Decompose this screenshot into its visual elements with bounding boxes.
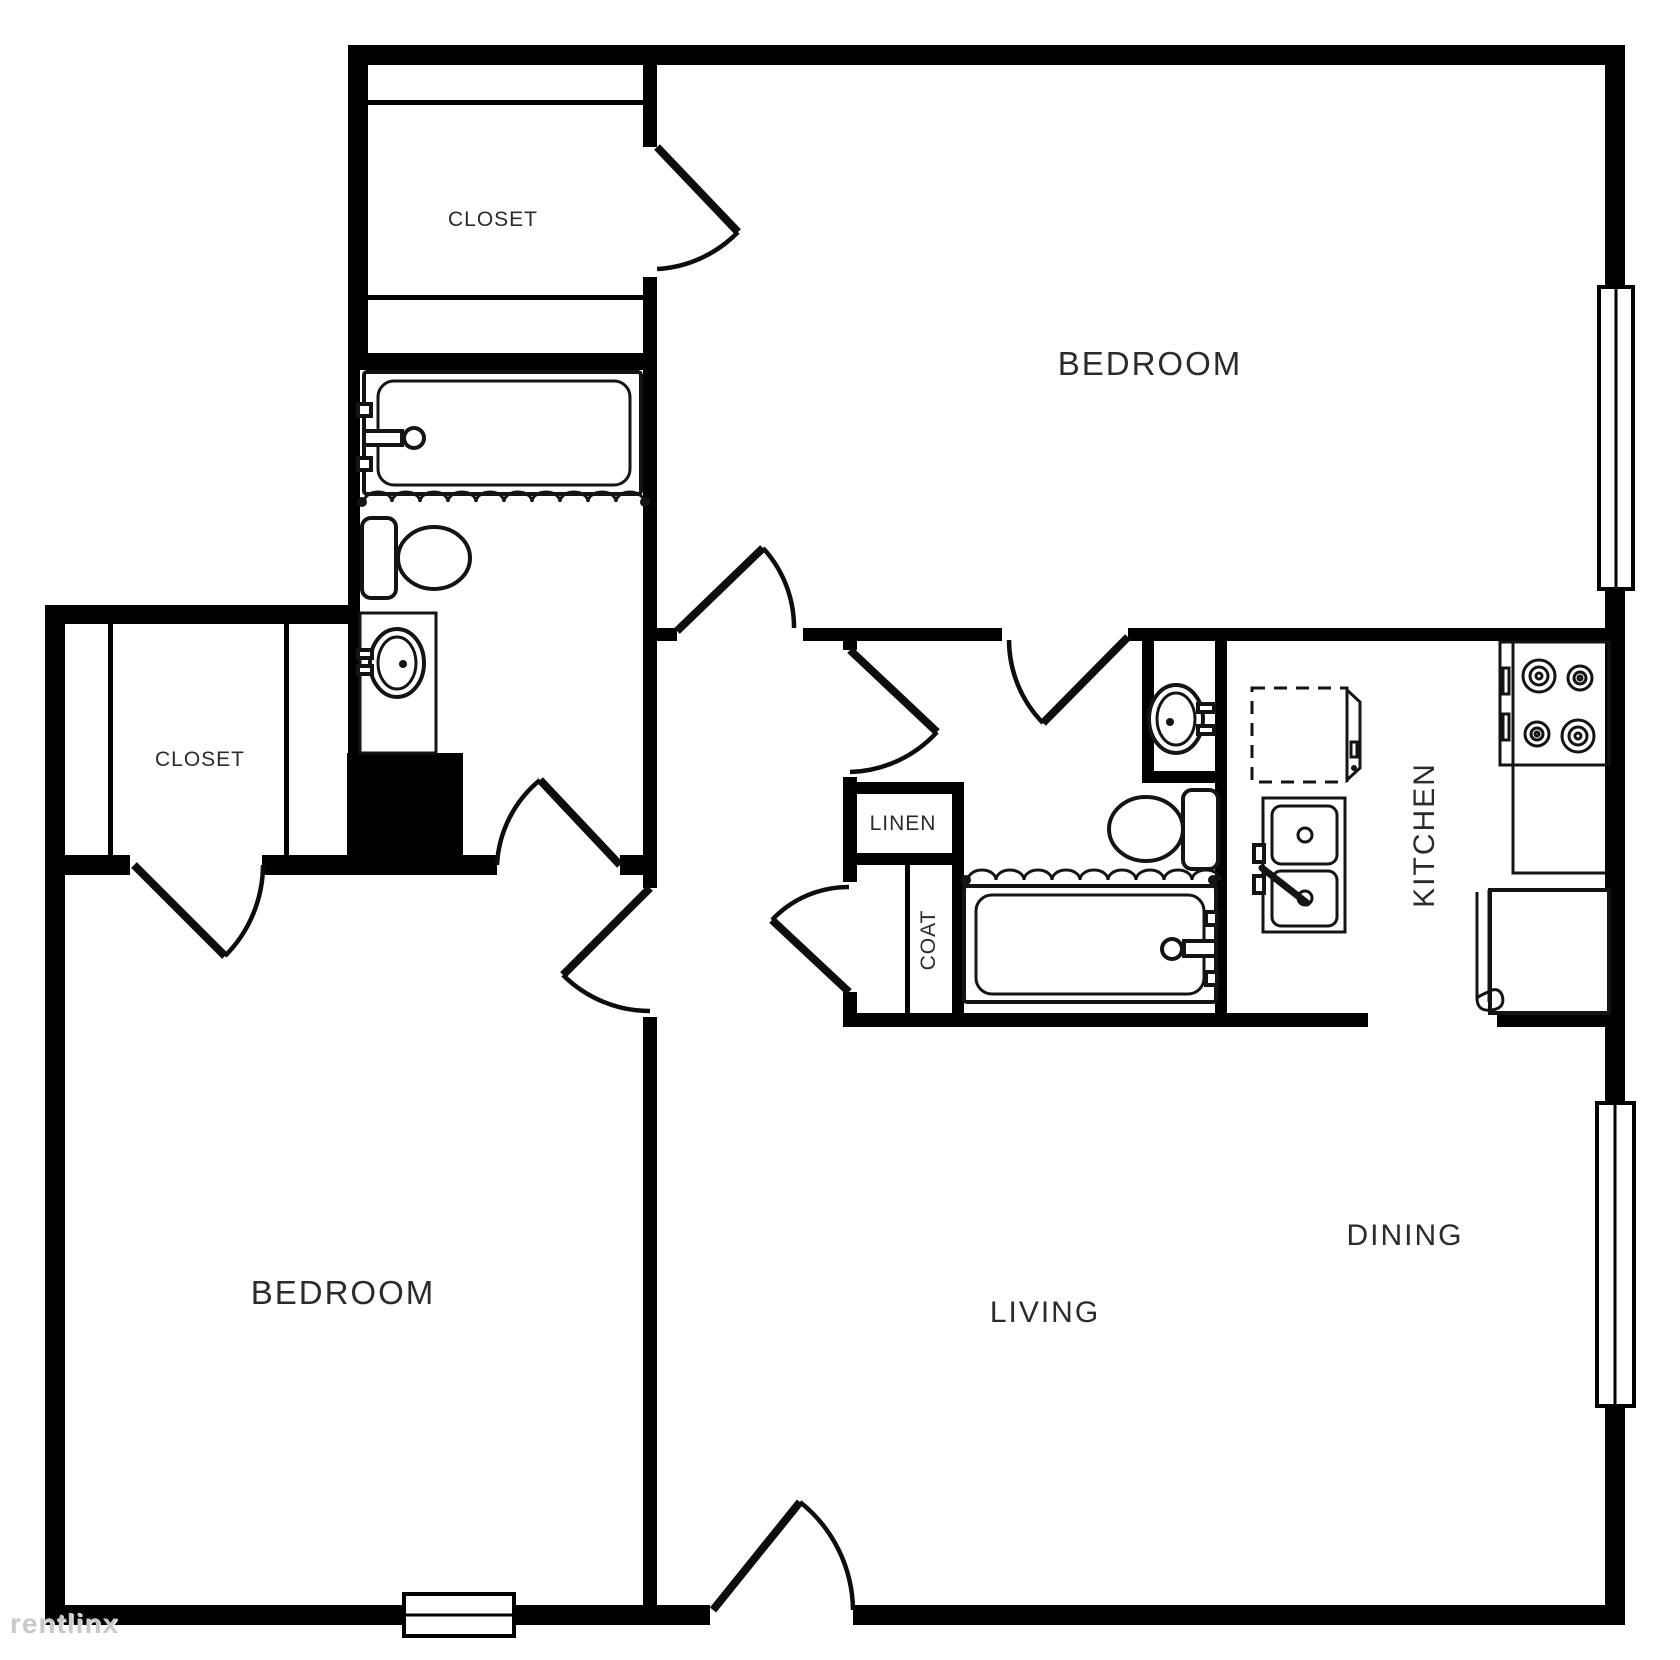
wall-hall-a: [657, 628, 677, 641]
refrigerator: [1477, 890, 1609, 1013]
wall-right-lower: [1605, 1401, 1625, 1625]
door-swing: [772, 887, 849, 992]
stove: [1500, 642, 1609, 765]
label-kitchen: KITCHEN: [1408, 762, 1441, 908]
wall-chase-block: [347, 753, 463, 875]
kitchen-sink: [1254, 798, 1345, 932]
counter: [1513, 765, 1605, 873]
wall-hall-c: [1128, 628, 1625, 641]
window: [404, 1594, 514, 1636]
wall-bath2-west-stub: [843, 628, 857, 650]
toilet: [362, 518, 470, 598]
exterior-walls: [45, 45, 1625, 1625]
rentlinx-watermark: rentlinx: [10, 1608, 119, 1640]
door-swing: [850, 650, 937, 772]
wall-center-mid: [643, 277, 657, 888]
door-swing: [497, 780, 620, 865]
door-swing: [134, 865, 263, 956]
wall-right-upper: [1605, 45, 1625, 292]
wall-center-top: [643, 45, 657, 147]
window: [1599, 287, 1633, 589]
label-linen: LINEN: [870, 812, 937, 835]
wall-sink-alcove-bottom: [1142, 771, 1215, 783]
dishwasher: [1252, 688, 1360, 782]
bathroom-center: [961, 685, 1220, 1002]
wall-bedroom-top-d: [620, 855, 657, 875]
bathtub: [964, 886, 1217, 1002]
vanity-sink: [358, 613, 436, 753]
wall-bath1-left: [348, 370, 360, 753]
door-swing: [563, 888, 650, 1011]
label-dining: DINING: [1347, 1219, 1464, 1252]
wall-kitchen-bottom: [1497, 1013, 1609, 1027]
wall-bedroom-top-a: [45, 855, 130, 875]
floor-plan: BEDROOM BEDROOM LIVING DINING KITCHEN CL…: [0, 0, 1680, 1660]
label-living: LIVING: [990, 1296, 1100, 1329]
line-top-closet-shelf-1: [368, 100, 643, 105]
window: [1597, 1103, 1634, 1406]
floor-plan-drawing: BEDROOM BEDROOM LIVING DINING KITCHEN CL…: [0, 0, 1680, 1660]
wall-bedroom-top-b: [262, 855, 347, 875]
vanity-sink: [1149, 685, 1214, 753]
wall-center-low: [643, 1017, 657, 1605]
wall-hall-b: [803, 628, 1002, 641]
line-left-closet-side-1: [108, 624, 113, 855]
label-bedroom-top-right: BEDROOM: [1058, 345, 1243, 382]
door-swing: [1009, 637, 1128, 723]
door-swing: [713, 1502, 853, 1610]
label-closet-bedroom: CLOSET: [155, 748, 245, 771]
toilet: [1109, 790, 1218, 869]
wall-left: [45, 605, 65, 1625]
wall-closet-left-top: [45, 605, 348, 624]
shower-curtain: [961, 870, 1220, 885]
wall-top: [348, 45, 1625, 65]
label-bedroom-bottom-left: BEDROOM: [251, 1274, 436, 1311]
door-swing: [677, 548, 794, 631]
line-coat-shelf: [905, 865, 910, 1013]
wall-bedroom-top-c: [463, 855, 497, 875]
wall-linen-bottom: [843, 853, 964, 865]
label-coat: COAT: [917, 910, 940, 971]
line-top-closet-shelf-2: [368, 295, 643, 300]
wall-top-closet-left: [348, 45, 368, 365]
wall-bottom-center: [514, 1605, 710, 1625]
interior-walls: [45, 45, 1625, 1605]
bathroom-top-left: [357, 372, 650, 753]
bathtub: [358, 372, 641, 494]
line-left-closet-side-2: [284, 624, 289, 855]
wall-bath2-bottom: [843, 1013, 1368, 1027]
door-swing: [657, 147, 738, 269]
wall-bottom-right: [853, 1605, 1625, 1625]
wall-linen-top: [843, 782, 964, 794]
label-closet-top: CLOSET: [448, 208, 538, 231]
wall-bath1-top: [348, 353, 643, 370]
